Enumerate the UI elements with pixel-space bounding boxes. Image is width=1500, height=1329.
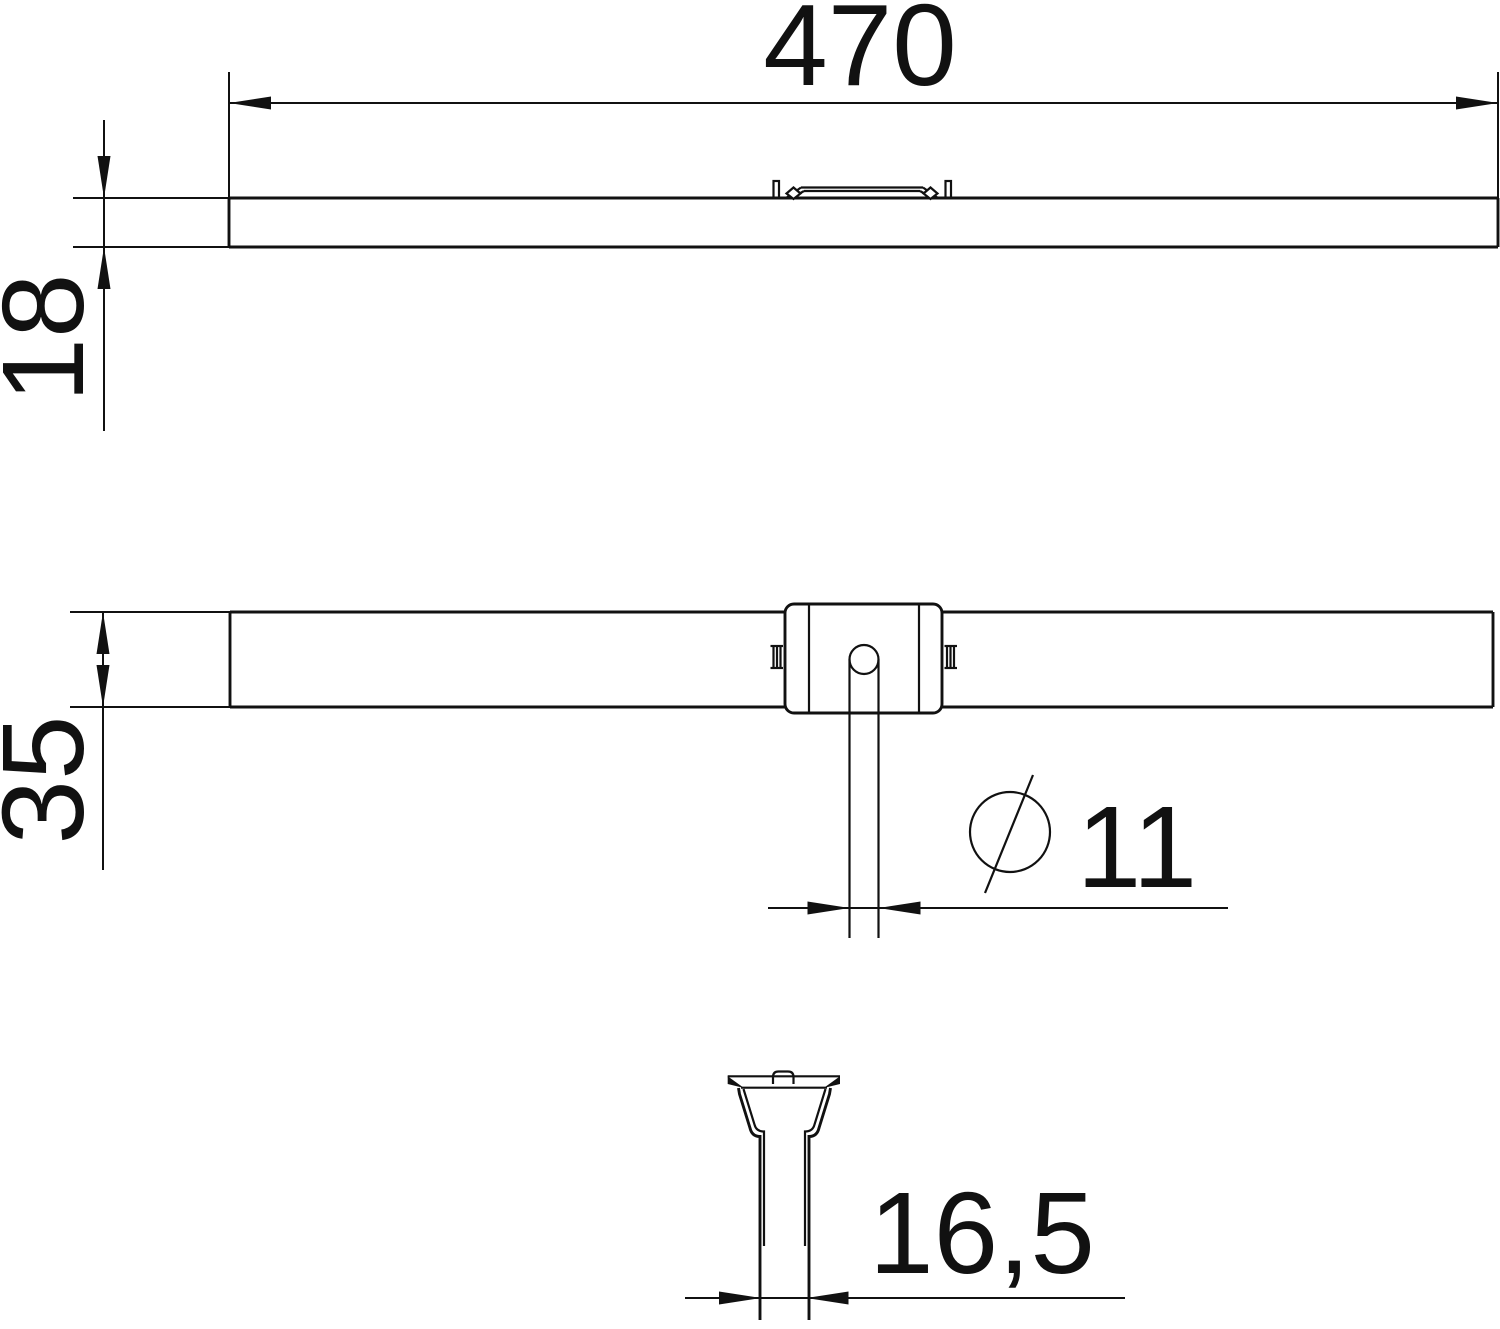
arrowhead-left: [229, 97, 271, 110]
center-clip-side: [774, 181, 952, 199]
profile-section: [739, 1088, 831, 1320]
flange-fold-right: [824, 1076, 840, 1088]
dimension-height-18: 18: [0, 120, 111, 431]
clip-tab-right: [946, 181, 952, 198]
dimension-text-hole-diameter: 11: [1077, 782, 1197, 912]
center-block: [785, 604, 942, 938]
plan-view: 35: [0, 604, 1493, 938]
arrowhead-left: [719, 1292, 761, 1305]
clip-tab-left: [774, 181, 780, 198]
arrowhead-right: [879, 902, 921, 915]
hole-outline: [850, 645, 879, 674]
dimension-slot-width-16-5: 16,5: [685, 1168, 1125, 1305]
dimension-text-width: 35: [0, 715, 108, 844]
arrowhead-right: [807, 1292, 849, 1305]
cup-outer-right: [809, 1088, 831, 1320]
flange-fold-left: [728, 1076, 744, 1088]
technical-dimension-drawing: 470 18: [0, 0, 1500, 1329]
arrowhead-up: [97, 612, 110, 654]
flange-section: [728, 1072, 840, 1089]
dimension-width-35: 35: [0, 612, 110, 870]
dimension-text-height: 18: [0, 273, 108, 402]
dimension-text-length: 470: [763, 0, 957, 110]
rail-outline: [73, 198, 1498, 247]
diameter-symbol-icon: [970, 775, 1050, 893]
cup-outer-left: [739, 1088, 761, 1320]
arrowhead-left: [808, 902, 850, 915]
drawing-page: 470 18: [0, 0, 1500, 1329]
arrowhead-top: [98, 156, 111, 198]
side-elevation-view: 470 18: [0, 0, 1498, 431]
dimension-text-slot-width: 16,5: [869, 1168, 1095, 1298]
dimension-length-470: 470: [229, 0, 1498, 198]
dimension-hole-diameter-11: 11: [768, 775, 1228, 915]
arrowhead-down: [97, 665, 110, 707]
cross-section-view: 16,5: [685, 1072, 1125, 1321]
arrowhead-right: [1456, 97, 1498, 110]
top-tab-outline: [773, 1072, 794, 1085]
